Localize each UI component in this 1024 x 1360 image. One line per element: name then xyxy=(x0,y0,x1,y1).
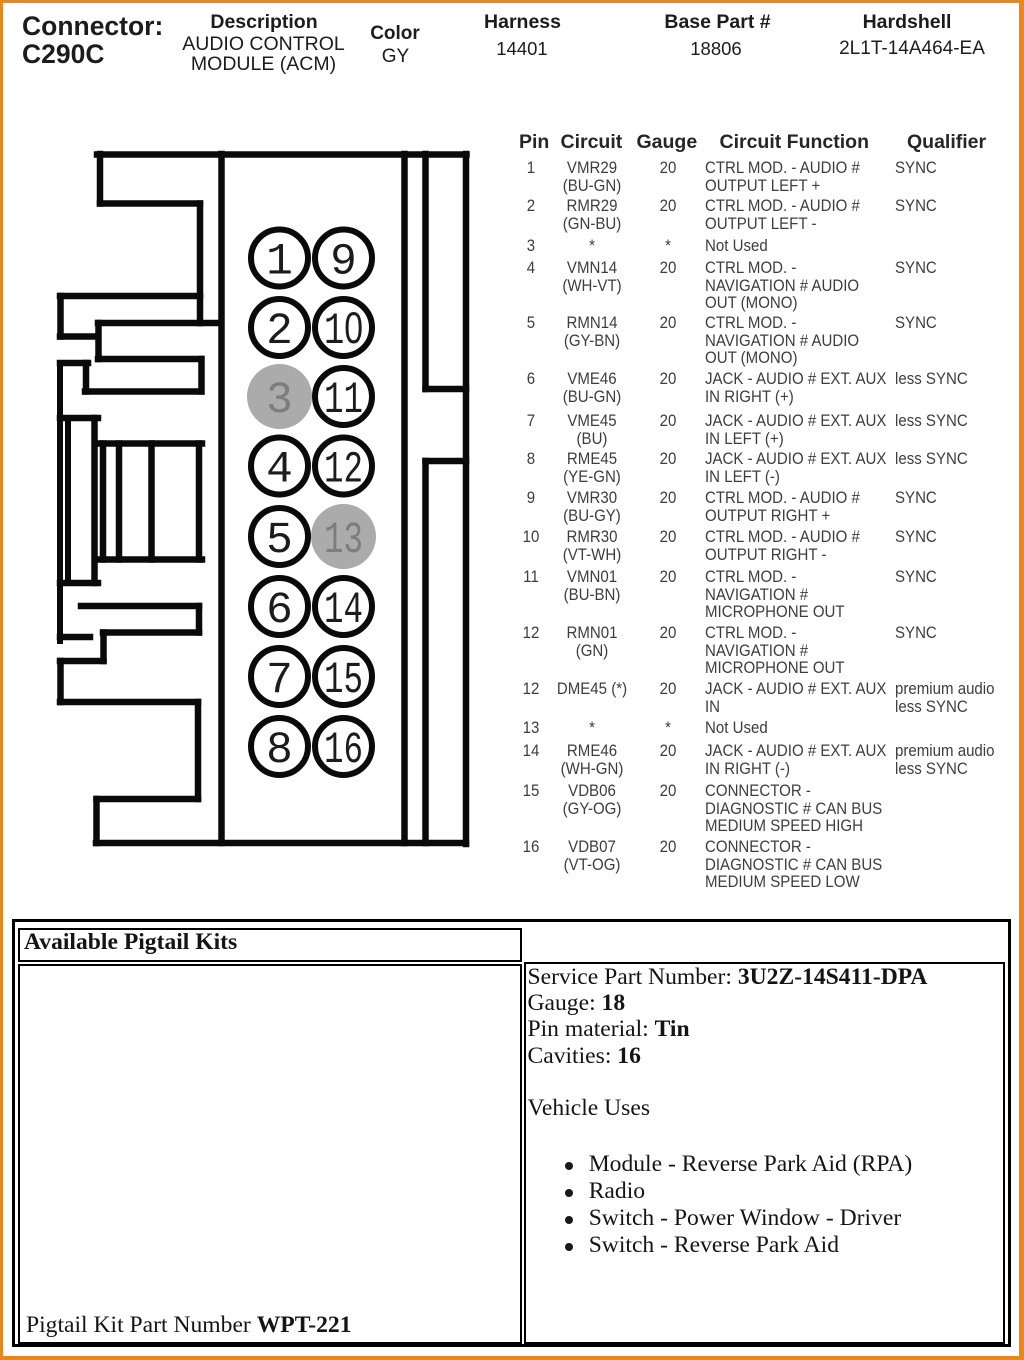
svg-text:15: 15 xyxy=(324,656,363,706)
svg-text:12: 12 xyxy=(324,446,363,496)
svg-text:7: 7 xyxy=(266,656,293,706)
svg-text:11: 11 xyxy=(324,376,363,426)
svg-text:8: 8 xyxy=(266,726,293,776)
svg-text:14: 14 xyxy=(324,586,363,636)
svg-text:3: 3 xyxy=(266,376,293,426)
svg-text:16: 16 xyxy=(324,726,363,776)
svg-text:2: 2 xyxy=(266,307,293,357)
svg-text:9: 9 xyxy=(330,238,357,288)
svg-text:4: 4 xyxy=(266,446,293,496)
svg-text:10: 10 xyxy=(324,304,363,357)
svg-text:5: 5 xyxy=(266,516,293,566)
svg-text:1: 1 xyxy=(266,238,293,288)
svg-text:13: 13 xyxy=(324,516,363,566)
svg-text:6: 6 xyxy=(266,586,293,636)
